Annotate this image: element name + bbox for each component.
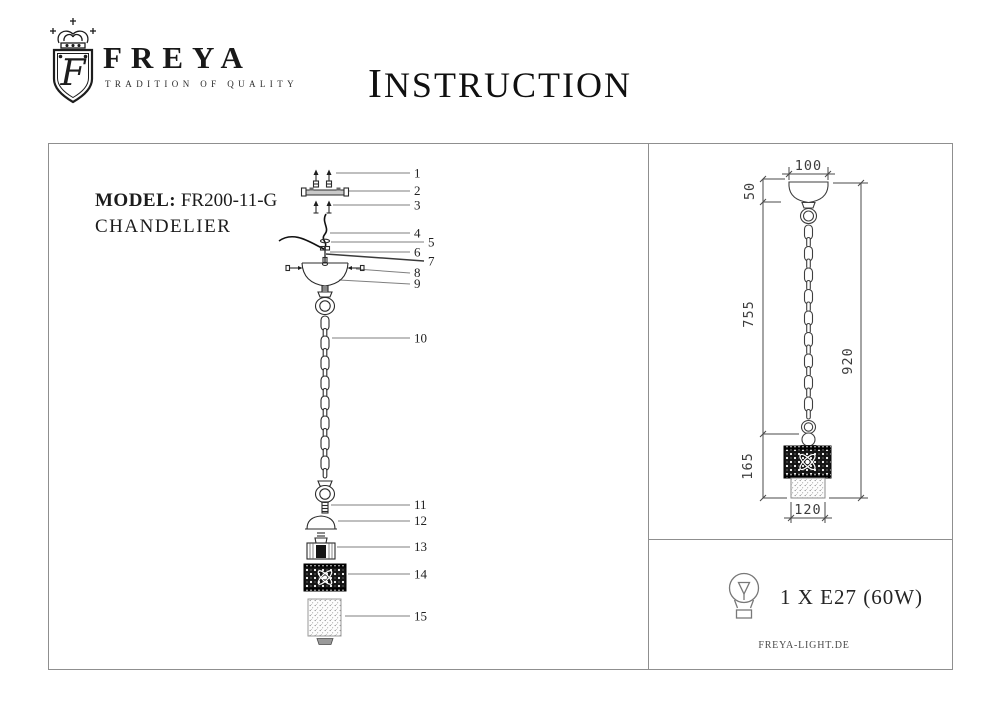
dim-canopy-width: 100 <box>795 158 822 174</box>
exploded-view-panel: MODEL: FR200-11-G CHANDELIER <box>49 144 648 669</box>
chain-outline <box>805 225 813 419</box>
brand-name: FREYA <box>103 40 323 76</box>
dim-canopy-height: 50 <box>742 182 758 200</box>
crown-icon <box>50 18 96 48</box>
part-number-7: 7 <box>428 254 435 269</box>
part-canopy <box>286 263 364 287</box>
website: FREYA-LIGHT.DE <box>754 640 854 651</box>
part-top-ring <box>316 286 335 315</box>
dimension-diagram: 100 50 755 920 165 120 <box>649 144 952 539</box>
part-numbers: 1 2 3 4 5 6 7 8 9 10 11 12 13 14 15 <box>414 166 435 624</box>
dim-shade-width: 120 <box>794 502 821 518</box>
model-block: MODEL: FR200-11-G CHANDELIER <box>95 188 277 240</box>
part-number-10: 10 <box>414 331 427 346</box>
dim-shade-height: 165 <box>740 452 756 479</box>
part-number-15: 15 <box>414 609 427 624</box>
part-number-9: 9 <box>414 276 421 291</box>
dim-total-height: 920 <box>840 347 856 374</box>
bulb-spec-panel: 1 X E27 (60W) FREYA-LIGHT.DE <box>649 540 952 668</box>
dim-suspension-length: 755 <box>741 300 757 327</box>
part-number-5: 5 <box>428 235 435 250</box>
part-mounting-bracket <box>302 188 349 197</box>
part-bottom-ring <box>316 481 335 503</box>
part-supply-wire <box>279 214 327 262</box>
page-title: INSTRUCTION <box>320 60 680 108</box>
model-value: FR200-11-G <box>181 190 277 211</box>
freya-shield-icon: F <box>44 16 102 110</box>
model-label: MODEL: <box>95 190 176 211</box>
light-bulb-icon <box>721 564 767 630</box>
part-lamp-socket <box>307 538 335 559</box>
part-number-13: 13 <box>414 539 427 554</box>
model-type: CHANDELIER <box>95 214 277 240</box>
dimension-panel: 100 50 755 920 165 120 <box>649 144 952 539</box>
part-bracket-bolts <box>314 201 332 214</box>
fixture-outline <box>784 182 831 498</box>
part-number-12: 12 <box>414 513 427 528</box>
part-number-14: 14 <box>414 567 428 582</box>
part-mounting-screws <box>314 170 332 188</box>
part-number-6: 6 <box>414 245 421 260</box>
part-number-4: 4 <box>414 226 421 241</box>
leader-lines <box>326 173 424 616</box>
part-ornate-band <box>304 564 346 591</box>
brand-tagline: TRADITION OF QUALITY <box>105 79 323 89</box>
part-chain <box>321 316 329 478</box>
part-number-2: 2 <box>414 183 421 198</box>
instruction-sheet: F FREYA TRADITION OF QUALITY INSTRUCTION… <box>0 0 1000 706</box>
part-number-1: 1 <box>414 166 421 181</box>
part-glass-shade <box>308 599 341 645</box>
part-number-3: 3 <box>414 198 421 213</box>
part-number-11: 11 <box>414 497 427 512</box>
lamp-spec: 1 X E27 (60W) <box>780 585 923 610</box>
part-cap-dome <box>305 516 337 536</box>
part-threaded-stud <box>321 502 329 513</box>
main-frame: MODEL: FR200-11-G CHANDELIER <box>48 143 953 670</box>
brand-monogram: F <box>60 53 88 94</box>
brand-block: FREYA TRADITION OF QUALITY <box>103 40 323 89</box>
